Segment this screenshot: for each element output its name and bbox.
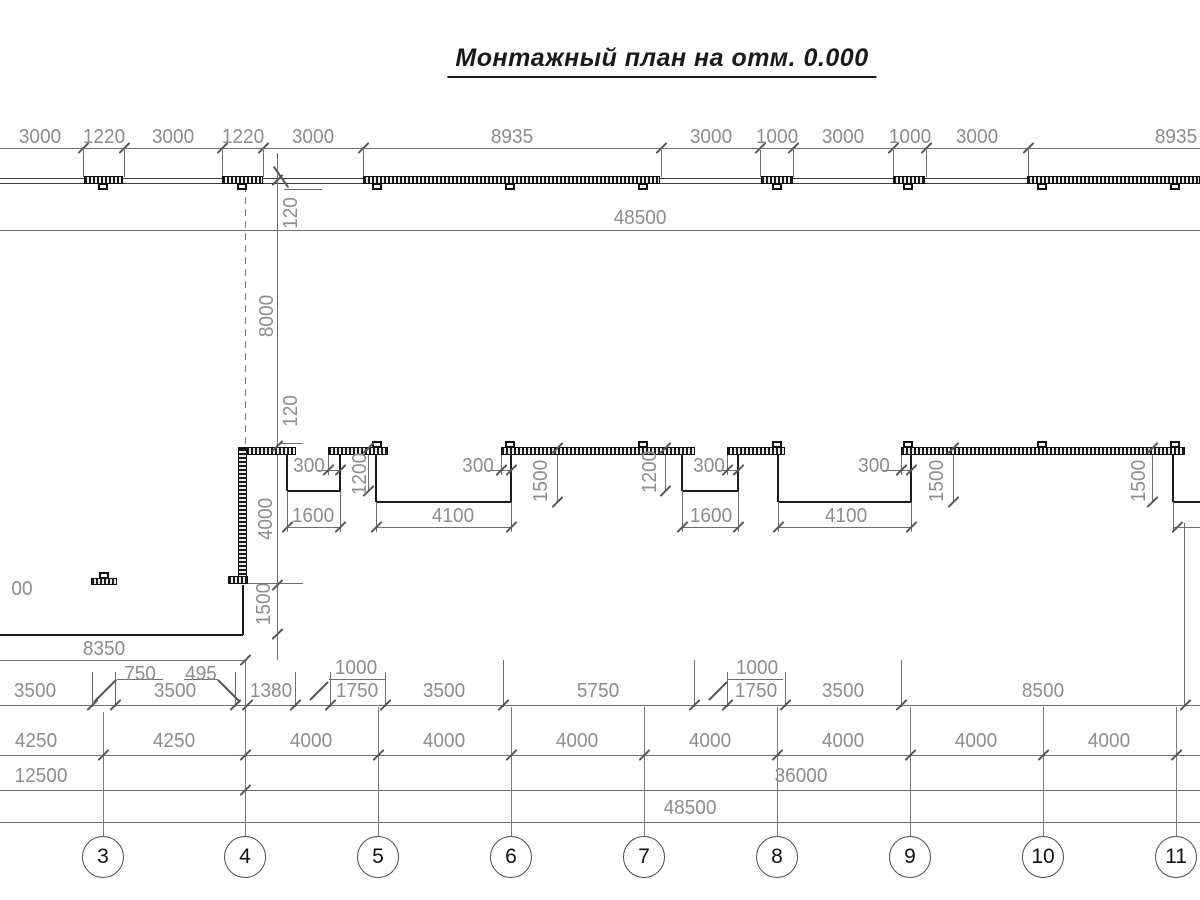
dimension-label: 300 bbox=[693, 456, 725, 476]
wall-panel bbox=[901, 447, 1185, 455]
wall-panel-tab bbox=[505, 183, 515, 190]
dimension-label: 48500 bbox=[664, 798, 717, 818]
axis-extension-line bbox=[644, 707, 645, 836]
extension-line bbox=[1172, 455, 1174, 502]
dimension-label: 3000 bbox=[956, 127, 998, 147]
dimension-label: 1500 bbox=[531, 460, 551, 502]
wall-panel-tab bbox=[505, 441, 515, 448]
extension-line bbox=[245, 185, 246, 446]
dimension-line bbox=[0, 755, 1200, 756]
axis-number: 11 bbox=[1165, 845, 1187, 869]
dimension-label: 8000 bbox=[257, 295, 277, 337]
extension-line bbox=[503, 660, 504, 707]
dimension-label: 4000 bbox=[290, 731, 332, 751]
dimension-label: 8500 bbox=[1022, 681, 1064, 701]
axis-extension-line bbox=[103, 712, 104, 836]
axis-circle: 6 bbox=[490, 836, 532, 878]
dimension-label: 300 bbox=[293, 456, 325, 476]
wall-panel-tab bbox=[1037, 183, 1047, 190]
extension-line bbox=[1173, 502, 1174, 532]
axis-number: 9 bbox=[904, 845, 916, 869]
axis-extension-line bbox=[910, 707, 911, 836]
dimension-label: 1600 bbox=[690, 506, 732, 526]
dimension-line bbox=[0, 634, 243, 636]
dimension-label: 8935 bbox=[1155, 127, 1197, 147]
dimension-label: 4000 bbox=[689, 731, 731, 751]
dimension-label: 300 bbox=[858, 456, 890, 476]
axis-number: 10 bbox=[1031, 845, 1054, 869]
dimension-label: 1000 bbox=[756, 127, 798, 147]
extension-line bbox=[363, 150, 364, 177]
axis-number: 8 bbox=[771, 845, 783, 869]
axis-circle: 10 bbox=[1022, 836, 1064, 878]
axis-number: 5 bbox=[372, 845, 384, 869]
extension-line bbox=[83, 150, 84, 177]
wall-panel-tab bbox=[1170, 183, 1180, 190]
dimension-label: 12500 bbox=[15, 766, 68, 786]
dimension-label: 1000 bbox=[736, 658, 778, 678]
dimension-line bbox=[778, 501, 911, 503]
dimension-label: 4000 bbox=[556, 731, 598, 751]
axis-extension-line bbox=[1043, 707, 1044, 836]
wall-panel-tab bbox=[772, 441, 782, 448]
wall-panel-tab bbox=[372, 183, 382, 190]
extension-line bbox=[901, 660, 902, 707]
dimension-line bbox=[0, 790, 1200, 791]
extension-line bbox=[893, 150, 894, 177]
wall-panel bbox=[727, 447, 785, 455]
extension-line bbox=[737, 455, 739, 491]
axis-number: 3 bbox=[97, 845, 109, 869]
dimension-label: 1000 bbox=[889, 127, 931, 147]
dimension-label: 3000 bbox=[822, 127, 864, 147]
dimension-label: 300 bbox=[462, 456, 494, 476]
wall-panel-vertical bbox=[238, 448, 247, 584]
wall-panel-tab bbox=[903, 183, 913, 190]
dimension-label: 1000 bbox=[335, 658, 377, 678]
axis-extension-line bbox=[378, 707, 379, 836]
axis-number: 4 bbox=[239, 845, 251, 869]
dimension-line bbox=[682, 490, 738, 492]
axis-number: 7 bbox=[638, 845, 650, 869]
extension-line bbox=[953, 448, 954, 502]
dimension-line bbox=[1173, 501, 1200, 503]
extension-line bbox=[124, 150, 125, 177]
dimension-label: 4000 bbox=[256, 498, 276, 540]
dimension-label: 4250 bbox=[15, 731, 57, 751]
tick-mark bbox=[217, 679, 241, 703]
wall-panel-tab bbox=[99, 572, 109, 579]
dimension-label: 5750 bbox=[577, 681, 619, 701]
dimension-label: 3500 bbox=[423, 681, 465, 701]
axis-circle: 8 bbox=[756, 836, 798, 878]
dimension-line bbox=[284, 189, 322, 190]
axis-extension-line bbox=[1176, 707, 1177, 836]
dimension-label: 3500 bbox=[14, 681, 56, 701]
axis-number: 6 bbox=[505, 845, 517, 869]
tick-mark bbox=[309, 681, 329, 701]
wall-panel-tab bbox=[237, 183, 247, 190]
extension-line bbox=[242, 585, 244, 635]
dimension-label: 4000 bbox=[822, 731, 864, 751]
dimension-label: 36000 bbox=[775, 766, 828, 786]
extension-line bbox=[1152, 448, 1153, 502]
dimension-label: 3500 bbox=[822, 681, 864, 701]
axis-circle: 9 bbox=[889, 836, 931, 878]
dimension-label: 120 bbox=[281, 395, 301, 427]
extension-line bbox=[286, 455, 288, 491]
dimension-label: 4000 bbox=[955, 731, 997, 751]
dimension-label: 1750 bbox=[336, 681, 378, 701]
tick-mark bbox=[708, 681, 728, 701]
wall-panel-tab bbox=[1170, 441, 1180, 448]
extension-line bbox=[222, 150, 223, 177]
wall-panel-small bbox=[91, 578, 117, 585]
extension-line bbox=[339, 455, 341, 491]
extension-line bbox=[926, 150, 927, 177]
dimension-label: 8935 bbox=[491, 127, 533, 147]
dimension-line bbox=[0, 705, 1200, 706]
extension-line bbox=[263, 150, 264, 177]
extension-line bbox=[1028, 150, 1029, 177]
dimension-label: 00 bbox=[11, 579, 32, 599]
extension-line bbox=[661, 150, 662, 177]
extension-line bbox=[910, 455, 912, 502]
wall-panel-tab bbox=[638, 183, 648, 190]
dimension-label: 120 bbox=[281, 197, 301, 229]
dimension-label: 4000 bbox=[423, 731, 465, 751]
dimension-label: 3000 bbox=[292, 127, 334, 147]
dimension-line bbox=[376, 501, 511, 503]
axis-circle: 5 bbox=[357, 836, 399, 878]
tick-mark bbox=[93, 679, 117, 703]
drawing-canvas: Монтажный план на отм. 0.000 30001220300… bbox=[0, 0, 1200, 900]
axis-circle: 3 bbox=[82, 836, 124, 878]
dimension-label: 495 bbox=[185, 664, 217, 684]
extension-line bbox=[510, 455, 512, 502]
extension-line bbox=[681, 455, 683, 491]
dimension-line bbox=[287, 490, 340, 492]
dimension-label: 1220 bbox=[83, 127, 125, 147]
axis-circle: 7 bbox=[623, 836, 665, 878]
dimension-label: 4100 bbox=[825, 506, 867, 526]
wall-panel-tab bbox=[98, 183, 108, 190]
extension-line bbox=[777, 455, 779, 502]
dimension-label: 1200 bbox=[640, 451, 660, 493]
dimension-line bbox=[0, 822, 1200, 823]
dimension-label: 1200 bbox=[350, 453, 370, 495]
dimension-label: 1220 bbox=[222, 127, 264, 147]
drawing-title: Монтажный план на отм. 0.000 bbox=[447, 44, 876, 78]
dimension-label: 1500 bbox=[1129, 460, 1149, 502]
dimension-label: 3000 bbox=[690, 127, 732, 147]
dimension-label: 1750 bbox=[735, 681, 777, 701]
dimension-label: 1500 bbox=[927, 460, 947, 502]
extension-line bbox=[375, 455, 377, 502]
extension-line bbox=[694, 660, 695, 707]
axis-circle: 11 bbox=[1155, 836, 1197, 878]
axis-extension-line bbox=[511, 707, 512, 836]
axis-circle: 4 bbox=[224, 836, 266, 878]
dimension-label: 1500 bbox=[254, 583, 274, 625]
dimension-label: 3000 bbox=[19, 127, 61, 147]
extension-line bbox=[760, 150, 761, 177]
wall-panel-foot bbox=[228, 576, 248, 584]
dimension-line bbox=[280, 443, 303, 444]
dimension-label: 4000 bbox=[1088, 731, 1130, 751]
extension-line bbox=[557, 448, 558, 502]
dimension-label: 1600 bbox=[292, 506, 334, 526]
extension-line bbox=[1184, 523, 1185, 707]
dimension-label: 1380 bbox=[250, 681, 292, 701]
axis-extension-line bbox=[245, 660, 246, 836]
wall-panel-tab bbox=[903, 441, 913, 448]
dimension-label: 750 bbox=[124, 664, 156, 684]
dimension-line bbox=[0, 230, 1200, 231]
extension-line bbox=[793, 150, 794, 177]
wall-panel-tab bbox=[772, 183, 782, 190]
dimension-label: 3000 bbox=[152, 127, 194, 147]
dimension-label: 8350 bbox=[83, 639, 125, 659]
dimension-label: 48500 bbox=[614, 208, 667, 228]
wall-panel-tab bbox=[1037, 441, 1047, 448]
dimension-label: 4100 bbox=[432, 506, 474, 526]
dimension-label: 4250 bbox=[153, 731, 195, 751]
wall-panel-tab bbox=[638, 441, 648, 448]
